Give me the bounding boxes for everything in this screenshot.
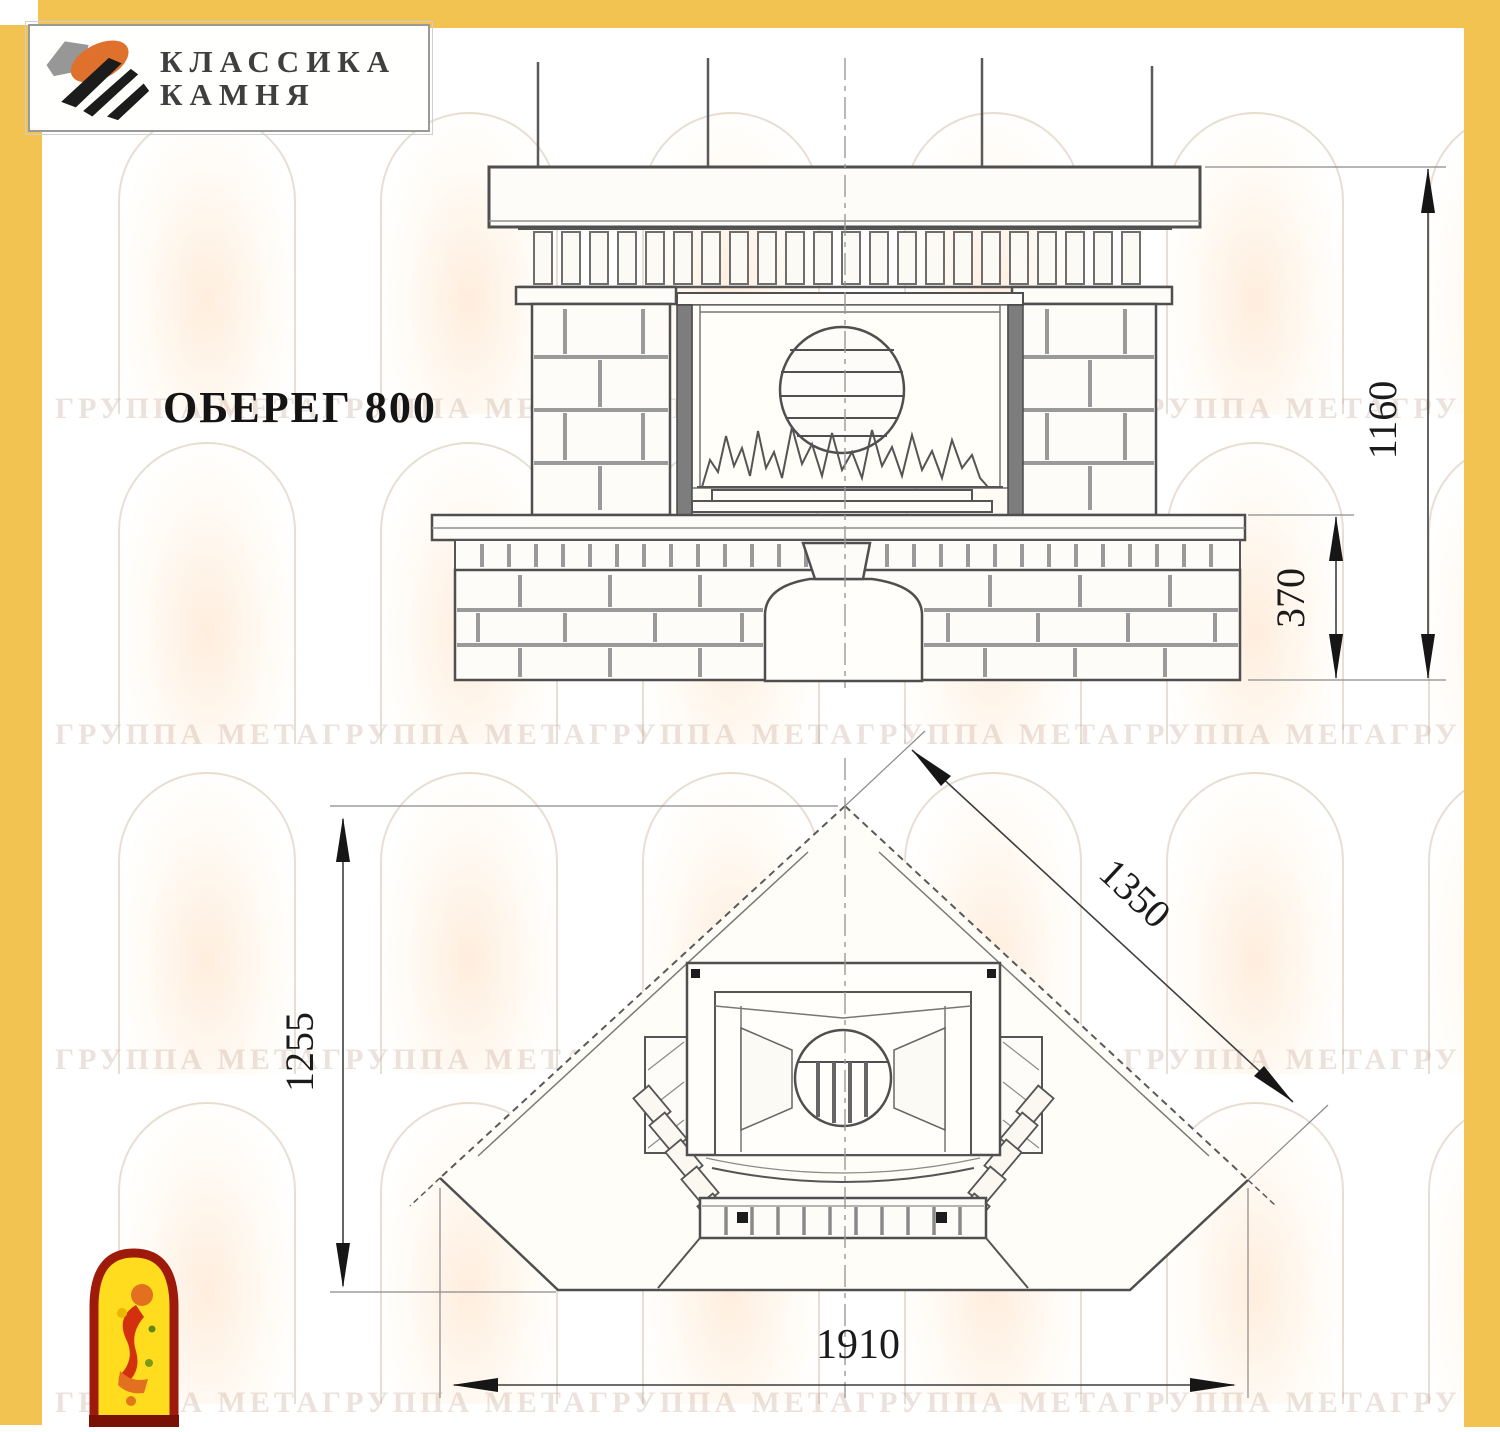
plan-view [410,758,1276,1398]
dim-diagonal: 1350 [1091,849,1180,936]
logo-line-2: КАМНЯ [160,78,396,111]
wood-niche-arch [765,579,922,681]
dim-total-height: 1160 [1360,381,1405,460]
front-elevation-view [432,58,1245,688]
logo-text: КЛАССИКА КАМНЯ [160,45,396,112]
ball-ornament-plan [795,1030,891,1126]
stone-logo-icon [40,34,152,122]
logo-line-1: КЛАССИКА [160,45,396,78]
frame-border-left [0,25,42,1425]
ball-ornament [780,327,904,453]
model-title: ОБЕРЕГ 800 [100,382,500,433]
technical-drawing: 1160 370 [0,0,1500,1427]
dim-depth: 1255 [277,1012,322,1092]
jester-arch-icon [86,1243,182,1427]
company-logo: КЛАССИКА КАМНЯ [28,24,430,132]
dim-width: 1910 [816,1322,900,1368]
dim-bench-height: 370 [1268,568,1313,628]
frame-border-right [1464,0,1500,1427]
